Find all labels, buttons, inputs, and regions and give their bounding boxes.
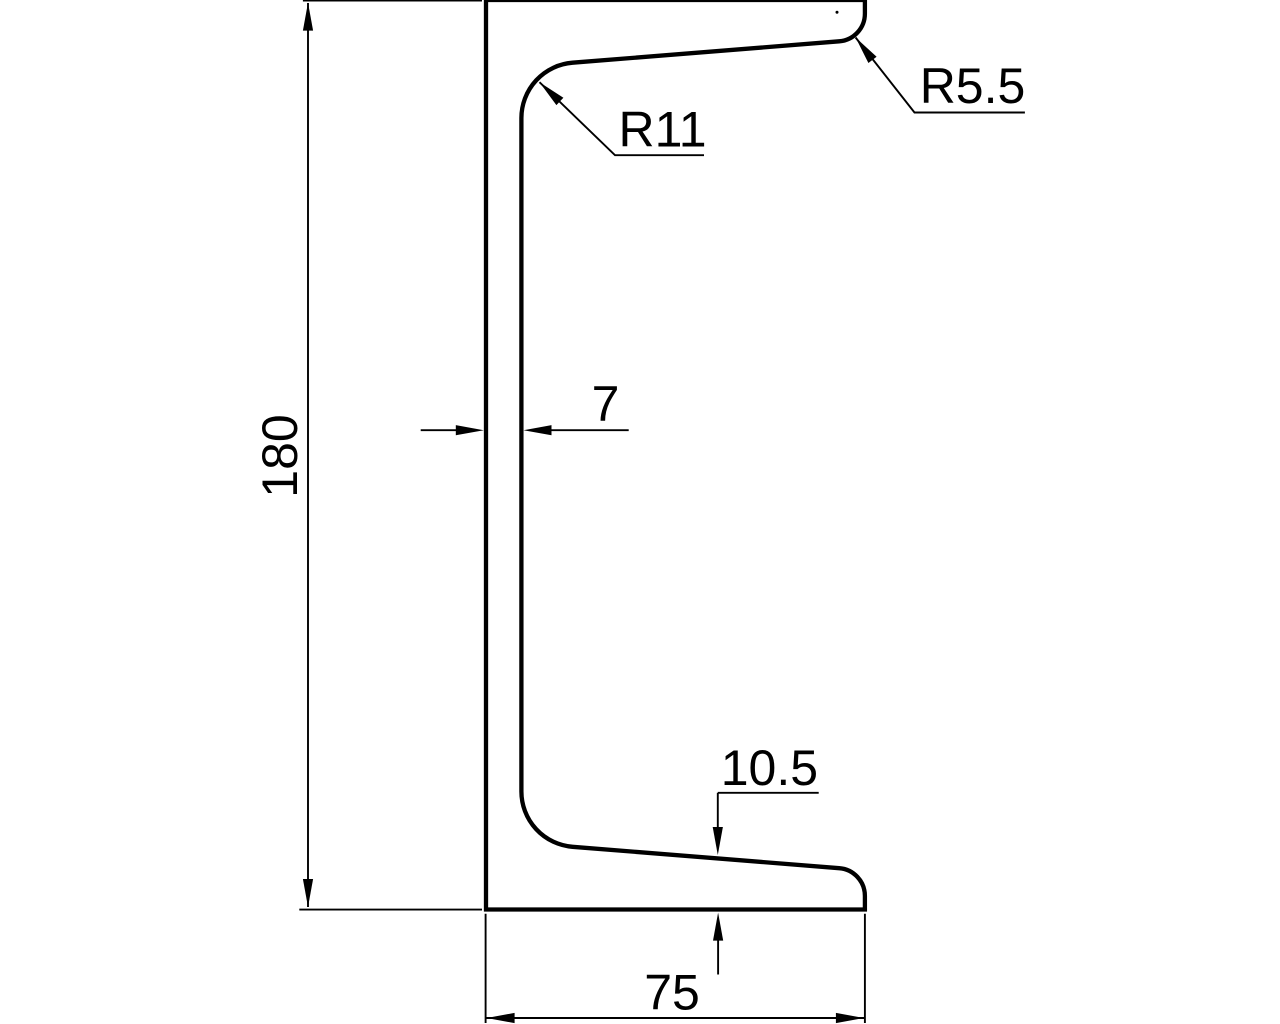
svg-text:180: 180 <box>252 414 308 497</box>
svg-text:R5.5: R5.5 <box>920 58 1026 114</box>
svg-text:75: 75 <box>644 964 700 1020</box>
svg-text:10.5: 10.5 <box>721 740 818 796</box>
svg-text:7: 7 <box>592 376 620 432</box>
svg-text:R11: R11 <box>618 102 706 158</box>
